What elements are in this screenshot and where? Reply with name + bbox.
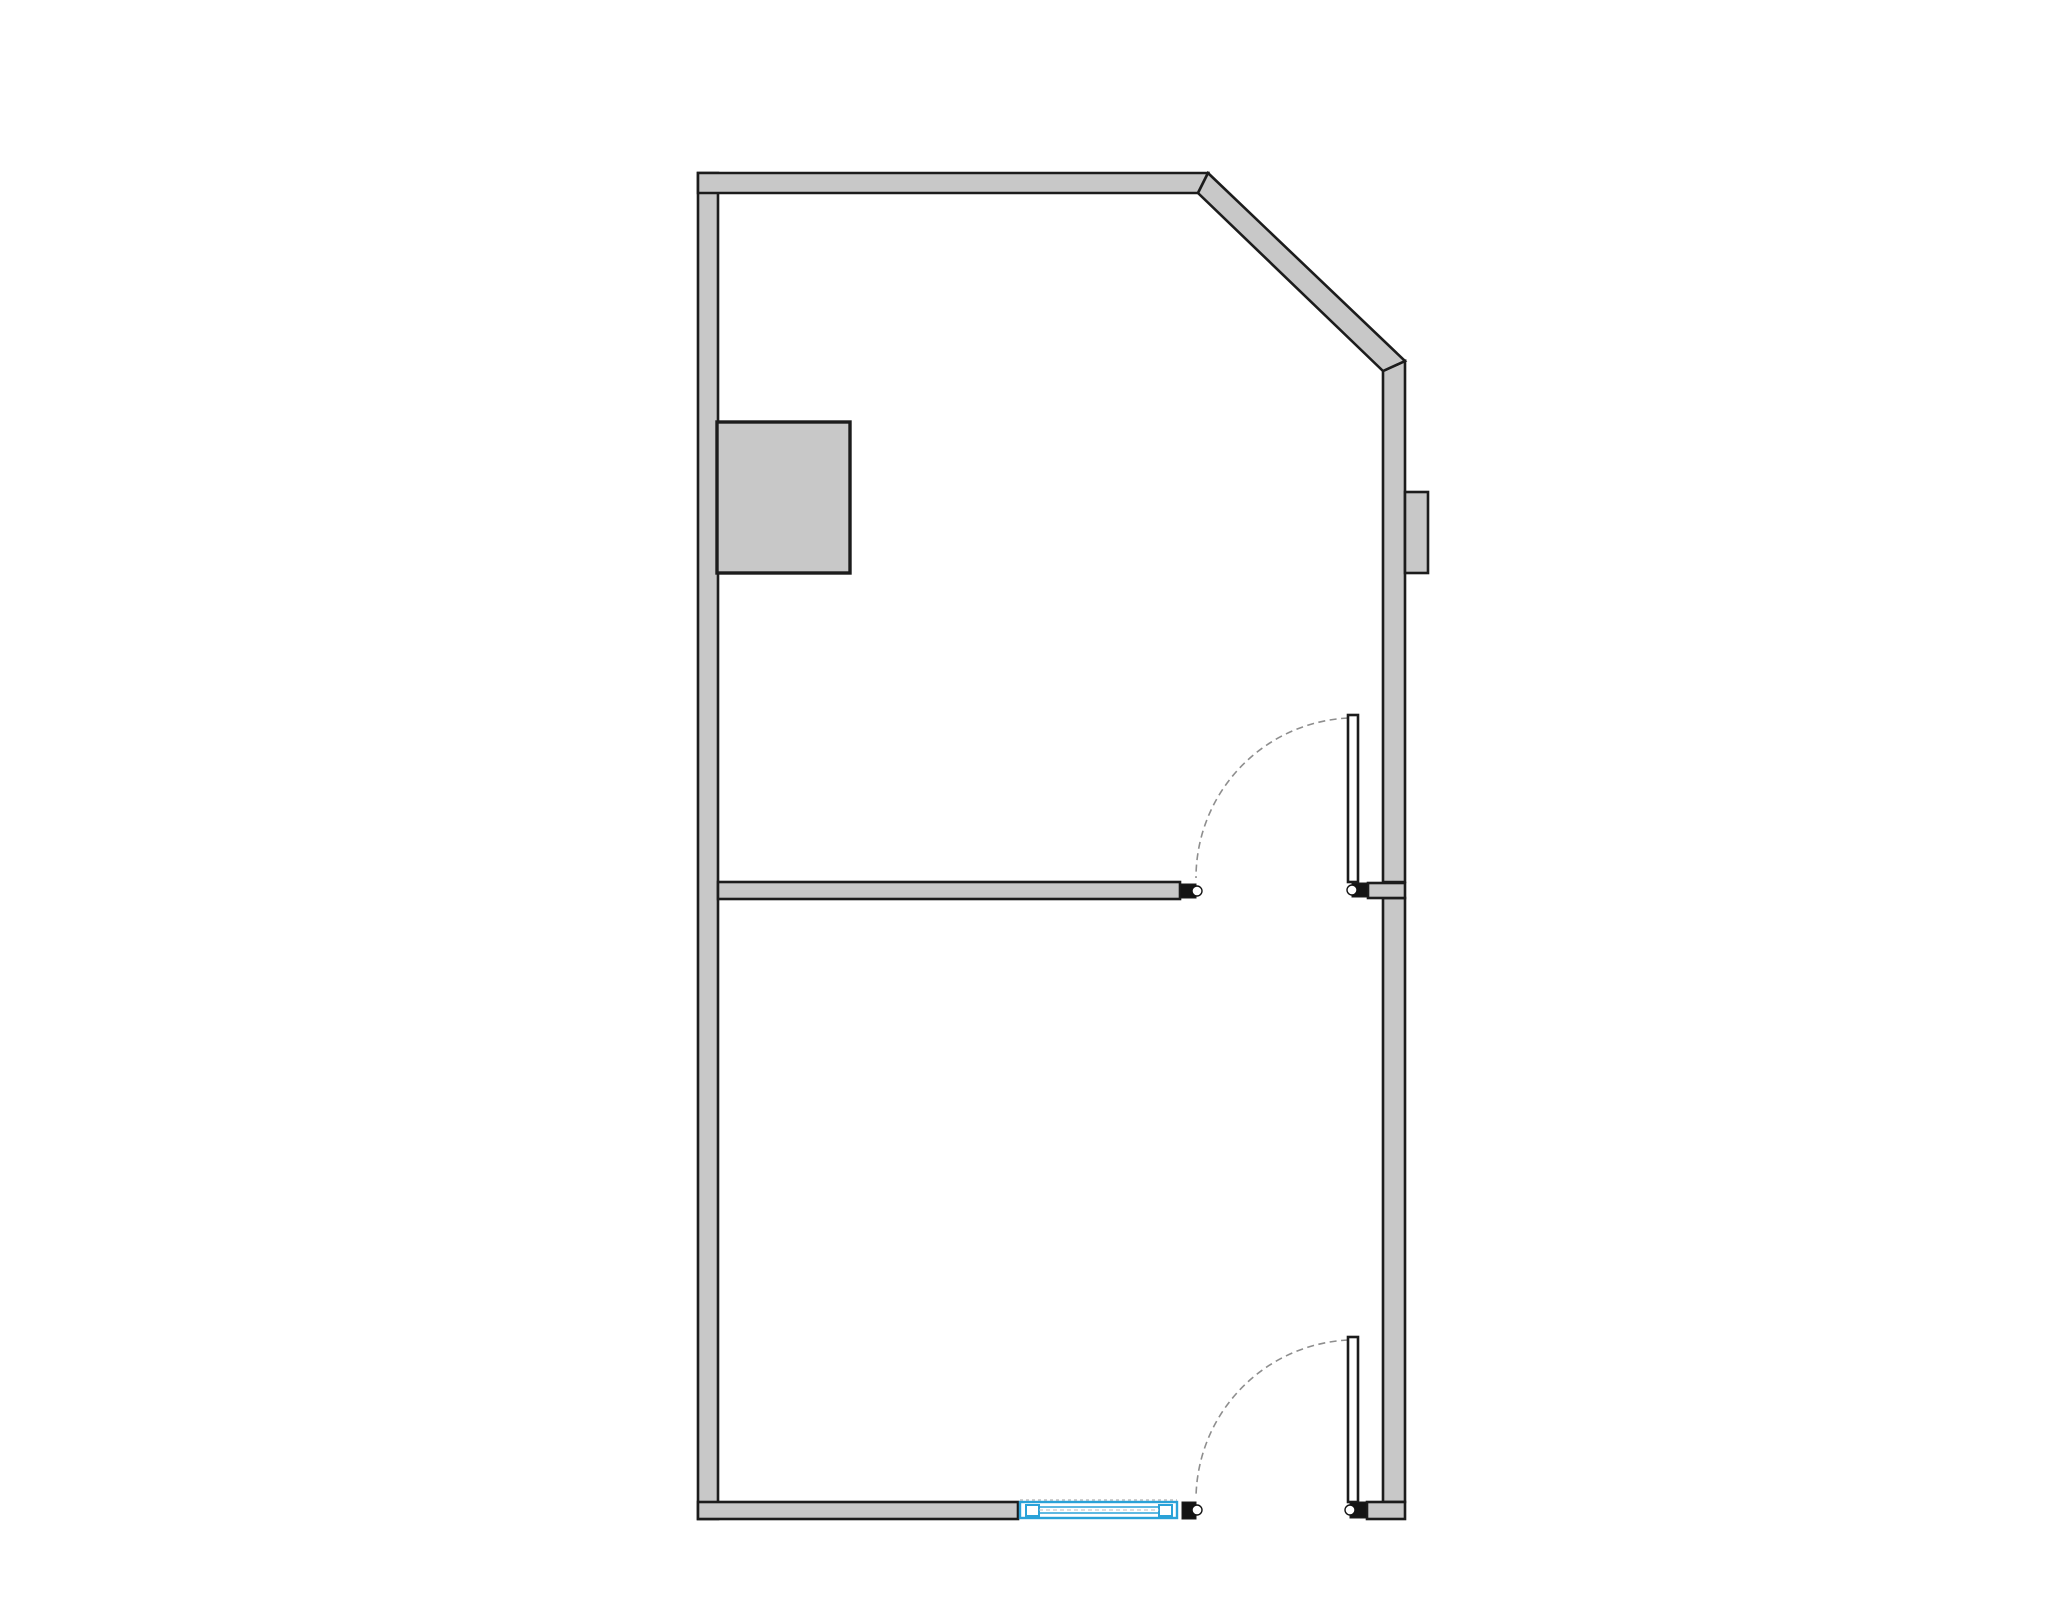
bottom-right-corner-wall [1367, 1502, 1405, 1519]
middle-door-hinge-notch [1347, 885, 1357, 895]
bottom-door-hinge-notch [1345, 1505, 1355, 1515]
right-wall-protrusion [1405, 492, 1428, 573]
middle-door-jamb-notch [1192, 886, 1202, 896]
divider-junction-stub [1368, 883, 1405, 898]
top-wall-exterior [698, 173, 1208, 193]
middle-door-leaf [1348, 715, 1358, 882]
left-wall-exterior [698, 173, 718, 1519]
floor-plan-canvas [0, 0, 2048, 1624]
middle-door-swing-arc [1196, 718, 1348, 878]
closet-fixture-block [717, 422, 850, 573]
window-pane-right [1159, 1505, 1172, 1516]
floor-plan-page [0, 0, 2048, 1624]
right-wall-lower-exterior [1383, 898, 1405, 1502]
bottom-wall-left-exterior [698, 1502, 1018, 1519]
right-wall-upper-exterior [1383, 361, 1405, 882]
bottom-door-swing-arc [1196, 1340, 1348, 1498]
interior-divider-wall [718, 882, 1180, 899]
diagonal-wall-exterior [1198, 173, 1405, 371]
bottom-door-leaf [1348, 1337, 1358, 1502]
bottom-door-jamb-notch [1192, 1505, 1202, 1515]
window-pane-left [1026, 1505, 1039, 1516]
